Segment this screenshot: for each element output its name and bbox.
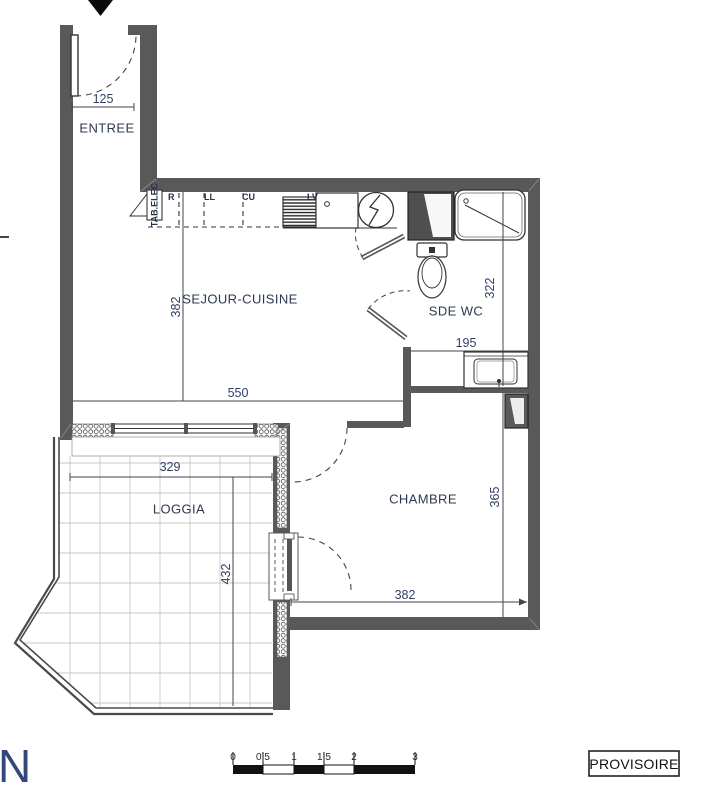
- sink-icon: [316, 193, 358, 228]
- dim-entree-width: 125: [93, 92, 114, 106]
- scale-tick-15: 1,5: [317, 752, 331, 763]
- dim-sde-width: 195: [456, 336, 477, 350]
- loggia-sill: [72, 437, 280, 456]
- dim-sejour-depth: 382: [169, 297, 183, 318]
- label-refrigerator: R: [168, 192, 175, 202]
- sde-lower-door: [368, 291, 410, 338]
- room-label-chambre: CHAMBRE: [389, 492, 457, 507]
- label-electrical-panel: TAB.ELEC: [150, 182, 160, 227]
- label-washer: LL: [204, 192, 215, 202]
- room-label-sde-wc: SDE WC: [429, 304, 483, 319]
- floor-plan-drawing: ENTREE SEJOUR-CUISINE SDE WC CHAMBRE LOG…: [0, 0, 703, 800]
- room-label-entree: ENTREE: [79, 121, 134, 136]
- closet-icon: [408, 192, 454, 240]
- dim-chambre-depth: 365: [488, 487, 502, 508]
- entree-door-swing: [75, 35, 136, 96]
- wall-corner-bevels: [61, 179, 539, 629]
- entree-door: [71, 35, 136, 96]
- room-label-sejour-cuisine: SEJOUR-CUISINE: [182, 292, 297, 307]
- dim-loggia-depth: 432: [219, 564, 233, 585]
- dim-chambre-width: 382: [395, 588, 416, 602]
- kitchen-door-leaf: [130, 194, 147, 216]
- scale-tick-0: 0: [230, 752, 236, 763]
- provisional-stamp: PROVISOIRE: [589, 751, 679, 776]
- floor-plan-page: ENTREE SEJOUR-CUISINE SDE WC CHAMBRE LOG…: [0, 0, 703, 800]
- water-heater-icon: [359, 193, 394, 228]
- washbasin-icon: [464, 352, 528, 388]
- chambre-door-swing: [293, 428, 347, 482]
- toilet-icon: [417, 243, 447, 298]
- scale-tick-05: 0,5: [256, 752, 270, 763]
- dim-sejour-width: 550: [228, 386, 249, 400]
- loggia-french-door: [269, 533, 351, 600]
- provisional-stamp-text: PROVISOIRE: [589, 756, 678, 772]
- logo-letter: N: [0, 740, 31, 792]
- duct-shaft-icon: [505, 394, 528, 428]
- shower-icon: [455, 190, 525, 240]
- loggia-railing: [15, 437, 273, 714]
- dim-loggia-width: 329: [160, 460, 181, 474]
- dim-sde-depth: 322: [483, 278, 497, 299]
- scale-tick-1: 1: [291, 752, 297, 763]
- scale-bar: 0 0,5 1 1,5 2 3: [230, 752, 418, 774]
- label-cooker: CU: [242, 192, 255, 202]
- label-dishwasher: LV: [307, 192, 318, 202]
- room-label-loggia: LOGGIA: [153, 502, 205, 517]
- scale-tick-2: 2: [351, 752, 357, 763]
- north-arrow-icon: [88, 0, 113, 16]
- entree-door-leaf: [71, 35, 78, 96]
- sde-upper-door: [355, 224, 404, 258]
- wall-insulation-hatch: [72, 424, 287, 657]
- scale-tick-3: 3: [412, 752, 418, 763]
- loggia-tile-grid: [10, 440, 280, 720]
- loggia-window: [111, 423, 257, 434]
